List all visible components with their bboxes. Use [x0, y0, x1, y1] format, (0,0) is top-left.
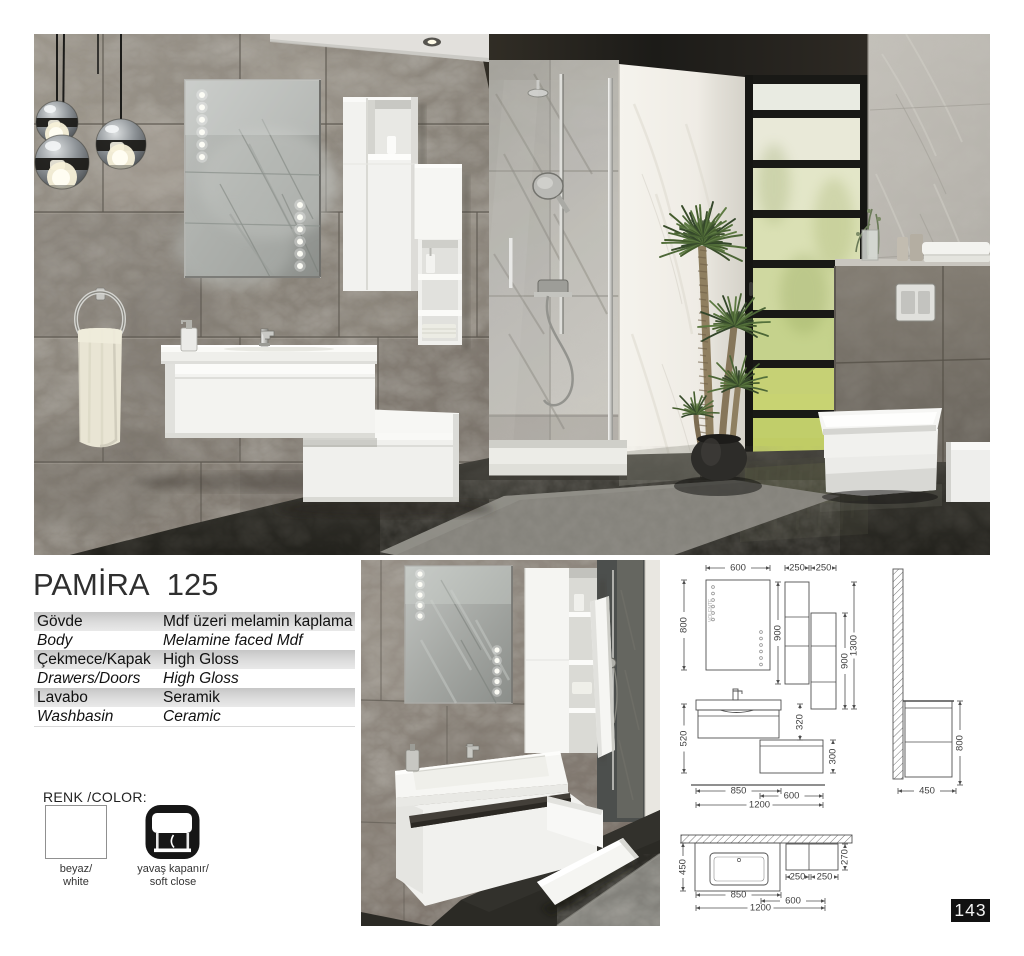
- svg-text:600: 600: [784, 791, 800, 802]
- svg-text:850: 850: [731, 786, 747, 797]
- svg-text:850: 850: [731, 890, 747, 901]
- svg-text:1300: 1300: [849, 635, 860, 656]
- svg-text:800: 800: [955, 735, 966, 751]
- svg-text:520: 520: [679, 731, 690, 747]
- svg-text:1200: 1200: [750, 903, 771, 914]
- svg-text:VOLENTE: VOLENTE: [708, 598, 714, 622]
- svg-text:250: 250: [789, 563, 805, 574]
- svg-text:320: 320: [795, 714, 806, 730]
- svg-text:270: 270: [840, 849, 851, 865]
- svg-text:300: 300: [828, 749, 839, 765]
- svg-text:900: 900: [773, 625, 784, 641]
- svg-text:450: 450: [678, 859, 689, 875]
- svg-text:250: 250: [816, 563, 832, 574]
- svg-text:450: 450: [919, 786, 935, 797]
- svg-text:250: 250: [790, 872, 806, 883]
- svg-text:250: 250: [817, 872, 833, 883]
- svg-text:600: 600: [785, 896, 801, 907]
- svg-text:800: 800: [679, 617, 690, 633]
- svg-text:1200: 1200: [749, 800, 770, 811]
- svg-text:600: 600: [730, 563, 746, 574]
